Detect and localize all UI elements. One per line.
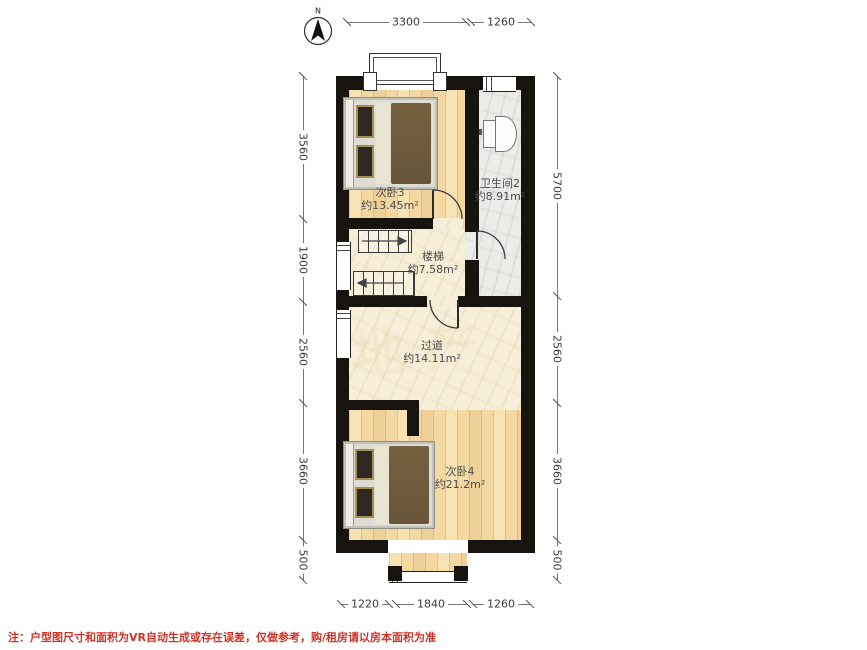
- room-area: 约21.2m²: [435, 478, 486, 491]
- bedroom3-label: 次卧3 约13.45m²: [361, 186, 419, 212]
- window-left-lower: [336, 310, 351, 358]
- stair-flight-lower: [353, 271, 415, 296]
- wall-bedroom4-north: [336, 400, 419, 410]
- wall-bathroom-west-b: [465, 260, 479, 296]
- wall-top-right: [516, 76, 535, 90]
- top-bay-post-left: [363, 72, 377, 91]
- bed-headboard: [346, 100, 354, 187]
- dim-bottom-1: 1220: [348, 598, 382, 611]
- stair-flight-upper: [358, 230, 412, 253]
- stairs-door-threshold: [427, 296, 458, 307]
- dim-left-1: 3560: [297, 130, 310, 164]
- dim-left-2: 1900: [297, 243, 310, 277]
- compass-icon: [302, 15, 334, 47]
- dim-top-1: 3300: [389, 16, 423, 29]
- toilet-flush-button: [479, 129, 482, 135]
- bedroom3-bed: [344, 98, 437, 189]
- dim-bottom-3: 1260: [484, 598, 518, 611]
- bedroom4-label: 次卧4 约21.2m²: [435, 465, 486, 491]
- bedroom4-bed: [344, 442, 434, 528]
- room-name: 过道: [403, 339, 461, 352]
- bedroom3-door-threshold: [433, 218, 463, 229]
- dim-bottom-2: 1840: [414, 598, 448, 611]
- wall-bathroom-west-a: [465, 90, 479, 232]
- dim-right-4: 500: [551, 547, 564, 574]
- room-name: 次卧3: [361, 186, 419, 199]
- room-area: 约13.45m²: [361, 199, 419, 212]
- room-name: 楼梯: [408, 250, 459, 263]
- wall-bedroom4-north-return: [407, 410, 419, 436]
- bed-headboard: [346, 444, 354, 526]
- wall-stairs-south-b: [458, 296, 521, 307]
- room-area: 约7.58m²: [408, 263, 459, 276]
- dim-right-1: 5700: [551, 169, 564, 203]
- bed-pillow: [356, 105, 375, 138]
- wall-bottom-left: [336, 540, 388, 553]
- dim-right-2: 2560: [551, 332, 564, 366]
- top-bay-post-right: [433, 72, 447, 91]
- bed-pillow: [355, 449, 373, 480]
- room-area: 约14.11m²: [403, 352, 461, 365]
- dim-top-2: 1260: [484, 16, 518, 29]
- floorplan-canvas: 地产: [0, 0, 867, 650]
- disclaimer-note: 注：户型图尺寸和面积为VR自动生成或存在误差，仅做参考，购/租房请以房本面积为准: [8, 629, 436, 645]
- wall-stairs-south-a: [336, 296, 427, 307]
- dim-right-3: 3660: [551, 454, 564, 488]
- dim-left-5: 500: [297, 547, 310, 574]
- wall-right: [521, 90, 535, 553]
- bed-sheet: [375, 446, 389, 523]
- bed-duvet: [391, 103, 432, 185]
- window-left-upper: [336, 242, 351, 290]
- wall-bedroom3-south: [349, 218, 433, 229]
- bed-duvet: [389, 446, 429, 523]
- stairs-label: 楼梯 约7.58m²: [408, 250, 459, 276]
- bottom-bay-post-right: [454, 566, 468, 581]
- bed-pillow: [356, 145, 375, 178]
- bed-sheet: [376, 103, 390, 185]
- top-bay-window: [369, 53, 441, 85]
- dim-left-3: 2560: [297, 335, 310, 369]
- bed-pillow: [355, 487, 373, 518]
- dim-left-4: 3660: [297, 454, 310, 488]
- room-name: 次卧4: [435, 465, 486, 478]
- bathroom2-label: 卫生间2 约8.91m²: [475, 177, 526, 203]
- wall-bottom-right: [468, 540, 535, 553]
- hallway-label: 过道 约14.11m²: [403, 339, 461, 365]
- window-bathroom-top: [483, 76, 516, 92]
- bathroom2-door-threshold: [465, 232, 479, 260]
- room-name: 卫生间2: [475, 177, 526, 190]
- bottom-bay-post-left: [388, 566, 402, 581]
- dim-line: [557, 76, 558, 580]
- room-area: 约8.91m²: [475, 190, 526, 203]
